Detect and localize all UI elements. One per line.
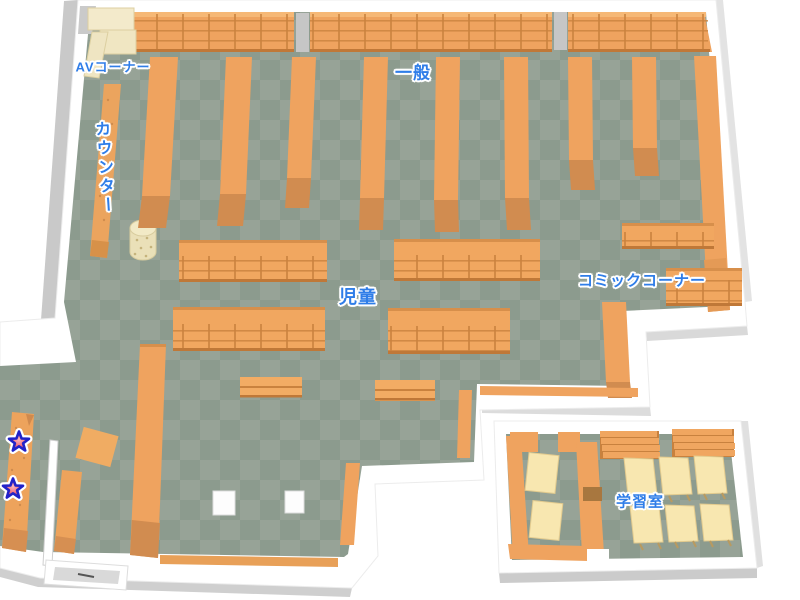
study-table bbox=[529, 501, 563, 541]
kiosk-box bbox=[213, 491, 235, 515]
study-table bbox=[700, 504, 733, 541]
label-general: 一般 bbox=[395, 59, 431, 84]
top-doorway bbox=[296, 13, 309, 52]
wall-bookshelf-row bbox=[310, 12, 552, 52]
top-doorway bbox=[554, 12, 567, 50]
bookshelf bbox=[510, 432, 538, 452]
bookshelf bbox=[568, 57, 595, 190]
library-floor-map: AVコーナー 一般 カウンター 児童 コミックコーナー 学習室 bbox=[0, 0, 800, 600]
label-av-corner: AVコーナー bbox=[75, 57, 150, 76]
study-table bbox=[525, 453, 559, 494]
label-comic-corner: コミックコーナー bbox=[578, 270, 706, 291]
kiosk-box bbox=[285, 491, 304, 513]
bookshelf-block bbox=[394, 239, 540, 281]
label-children: 児童 bbox=[339, 283, 377, 309]
bookshelf-block bbox=[622, 223, 714, 249]
label-study-room: 学習室 bbox=[616, 491, 664, 512]
bookshelf-block bbox=[173, 307, 325, 351]
wall-bookshelf bbox=[600, 431, 660, 459]
wall-bookshelf-row bbox=[134, 12, 294, 52]
doorway bbox=[587, 549, 609, 564]
bookshelf bbox=[434, 57, 460, 232]
wall-shelf-strip bbox=[457, 390, 472, 458]
wall-bookshelf-row bbox=[568, 12, 712, 52]
bookshelf-block bbox=[179, 240, 327, 282]
study-table bbox=[659, 457, 692, 495]
study-table bbox=[630, 506, 663, 543]
study-table bbox=[694, 456, 727, 494]
study-table bbox=[665, 505, 698, 542]
bookshelf bbox=[359, 57, 388, 230]
wall-bookshelf bbox=[672, 429, 735, 457]
low-table bbox=[240, 377, 302, 398]
bookshelf-block bbox=[388, 308, 510, 354]
bookshelf bbox=[508, 544, 588, 561]
low-table bbox=[375, 380, 435, 401]
bookshelf bbox=[632, 57, 659, 176]
floor-map-canvas bbox=[0, 0, 800, 600]
bookshelf bbox=[504, 57, 531, 230]
